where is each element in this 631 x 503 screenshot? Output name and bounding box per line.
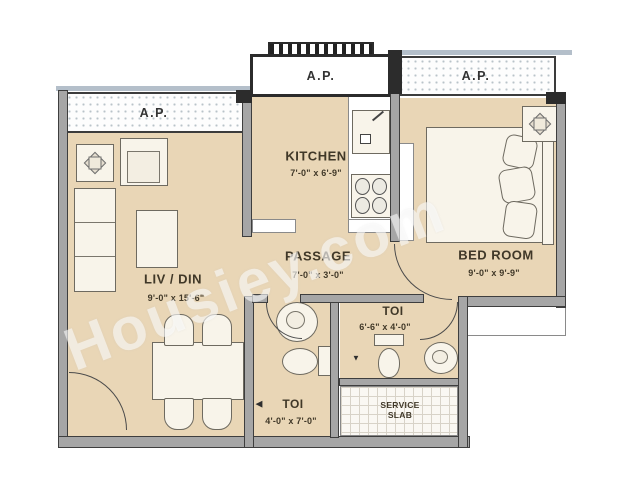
wall-service-slab-top	[339, 378, 459, 386]
kitchen-dims: 7'-0" x 6'-9"	[290, 168, 341, 178]
wall-kitchen-bedroom	[390, 92, 400, 242]
wc-bowl-icon	[378, 348, 400, 378]
plant-bedroom-inner-icon	[534, 118, 547, 131]
service-slab-label: SERVICE SLAB	[380, 401, 419, 421]
wall-passage-stub	[252, 294, 268, 303]
washbasin-right-icon	[424, 342, 458, 374]
floor-plan: A.P. A.P. A.P.	[0, 0, 631, 503]
wall-bottom-outer	[58, 436, 470, 448]
wall-living-kitchen	[242, 90, 252, 237]
toilet-right-label: TOI	[382, 304, 403, 318]
balcony-middle: A.P.	[250, 54, 392, 97]
balcony-left: A.P.	[64, 92, 244, 133]
sink-drain-icon	[360, 134, 371, 144]
dining-chair-icon	[202, 398, 232, 430]
living-room-label: LIV / DIN	[144, 272, 202, 287]
balcony-right-label: A.P.	[462, 69, 491, 83]
wc-tank-icon	[374, 334, 404, 346]
armchair-seat-icon	[127, 151, 160, 183]
stove-icon	[351, 174, 391, 218]
sofa-cushion-line	[75, 256, 115, 257]
armchair-icon	[120, 138, 168, 186]
wall-living-toilet	[244, 296, 254, 448]
dining-chair-icon	[164, 398, 194, 430]
plant-living-inner-icon	[89, 157, 102, 170]
balcony-middle-label: A.P.	[307, 69, 336, 83]
bedroom-label: BED ROOM	[458, 248, 534, 263]
wall-stub-balcony-right-end	[546, 92, 566, 104]
balcony-rail-right	[390, 50, 572, 55]
window-ledge	[464, 306, 566, 336]
kitchen-door-jamb	[252, 219, 296, 233]
service-slab-line2: SLAB	[380, 411, 419, 421]
passage-dims: 7'-0" x 3'-0"	[292, 270, 343, 280]
burner-icon	[372, 178, 387, 195]
bed-headboard-icon	[542, 125, 554, 245]
toilet-bottom-label: TOI	[282, 397, 303, 411]
pillow-icon	[497, 165, 536, 204]
faucet-icon	[372, 111, 384, 122]
passage-label: PASSAGE	[285, 249, 351, 264]
plant-pot-bedroom-icon	[522, 106, 558, 142]
passage-floor	[250, 232, 402, 298]
side-table-icon	[136, 210, 178, 268]
toilet-bottom-pointer-icon: ◀	[256, 399, 263, 410]
sofa-cushion-line	[75, 222, 115, 223]
pillow-icon	[502, 200, 539, 240]
kitchen-door-jamb	[348, 219, 392, 233]
living-room-dims: 9'-0" x 15'-6"	[148, 293, 205, 303]
washbasin-bowl-icon	[432, 350, 448, 364]
wall-bedroom-bottom	[458, 296, 566, 307]
toilet-bottom-dims: 4'-0" x 7'-0"	[265, 416, 316, 426]
dining-chair-icon	[164, 314, 194, 346]
wall-stub-balcony-left-end	[236, 90, 252, 103]
wall-stub-balcony-right-start	[388, 50, 402, 94]
balcony-middle-grill-icon	[268, 42, 374, 56]
wall-left-outer	[58, 90, 68, 448]
dining-table-icon	[152, 342, 244, 400]
burner-icon	[355, 197, 370, 214]
wall-toilet-divider	[330, 298, 339, 438]
bedroom-dims: 9'-0" x 9'-9"	[468, 268, 519, 278]
toilet-right-dims: 6'-6" x 4'-0"	[359, 322, 410, 332]
balcony-right: A.P.	[396, 56, 556, 96]
dining-chair-icon	[202, 314, 232, 346]
burner-icon	[355, 178, 370, 195]
wc-bowl-icon	[282, 348, 318, 375]
balcony-left-label: A.P.	[140, 106, 169, 120]
wall-right-outer	[458, 296, 468, 448]
sofa-icon	[74, 188, 116, 292]
wardrobe-icon	[398, 143, 414, 241]
wall-passage-toilets	[300, 294, 424, 303]
kitchen-label: KITCHEN	[285, 149, 346, 164]
wall-bedroom-right-outer	[556, 92, 566, 308]
kitchen-sink-icon	[352, 110, 390, 154]
burner-icon	[372, 197, 387, 214]
floor-drain-icon: ▼	[352, 354, 360, 363]
balcony-rail-left	[56, 86, 256, 91]
plant-pot-living-icon	[76, 144, 114, 182]
